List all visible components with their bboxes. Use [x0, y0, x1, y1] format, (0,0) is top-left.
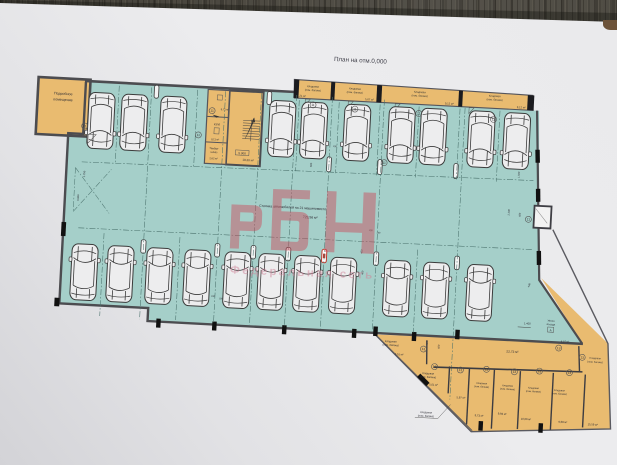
- svg-text:2,62 м²: 2,62 м²: [209, 156, 218, 160]
- svg-text:1.500: 1.500: [518, 171, 521, 178]
- svg-text:18,20 м²: 18,20 м²: [242, 158, 254, 163]
- svg-text:4,21 м²: 4,21 м²: [297, 94, 306, 98]
- svg-text:1.400: 1.400: [524, 321, 531, 325]
- svg-text:5,51 м²: 5,51 м²: [395, 352, 404, 356]
- svg-text:13: 13: [459, 368, 463, 372]
- svg-text:2.300: 2.300: [508, 209, 511, 216]
- svg-text:5,67 м²: 5,67 м²: [365, 97, 374, 101]
- svg-text:13: 13: [512, 370, 516, 374]
- svg-text:9,93 м²: 9,93 м²: [498, 412, 507, 416]
- svg-text:400: 400: [518, 212, 521, 217]
- svg-text:11: 11: [382, 161, 386, 165]
- svg-text:11: 11: [83, 124, 87, 128]
- svg-text:шлюз: шлюз: [210, 151, 218, 154]
- svg-text:13: 13: [422, 347, 426, 351]
- svg-text:9,12 м²: 9,12 м²: [445, 101, 454, 105]
- svg-text:10,09 м²: 10,09 м²: [521, 417, 532, 422]
- svg-text:11: 11: [353, 107, 357, 111]
- svg-text:3.000: 3.000: [76, 194, 80, 201]
- svg-text:(пом. багажа): (пом. багажа): [412, 93, 428, 98]
- svg-text:(пом. багажа): (пом. багажа): [486, 97, 502, 102]
- svg-text:КУИ: КУИ: [214, 122, 220, 126]
- svg-text:400: 400: [437, 344, 440, 349]
- svg-text:5,01 м²: 5,01 м²: [429, 382, 438, 386]
- svg-text:(пом. багажа): (пом. багажа): [305, 88, 321, 93]
- svg-text:13: 13: [557, 346, 561, 350]
- svg-text:15,59 м²: 15,59 м²: [588, 422, 599, 427]
- svg-text:5,97 м²: 5,97 м²: [456, 395, 465, 399]
- svg-text:11: 11: [197, 133, 201, 137]
- svg-text:11: 11: [492, 117, 496, 121]
- svg-text:3,11 м²: 3,11 м²: [211, 137, 220, 141]
- svg-text:9,12 м²: 9,12 м²: [517, 105, 526, 109]
- svg-text:13: 13: [433, 365, 437, 369]
- svg-text:13: 13: [580, 355, 584, 359]
- svg-text:13: 13: [538, 369, 542, 373]
- svg-text:13: 13: [568, 371, 572, 375]
- svg-text:11: 11: [527, 217, 531, 221]
- svg-text:11: 11: [210, 109, 214, 113]
- svg-text:План на отм.0,000: План на отм.0,000: [334, 56, 388, 66]
- svg-text:(пом. багажа): (пом. багажа): [347, 90, 363, 95]
- svg-text:22,73 м²: 22,73 м²: [506, 349, 518, 354]
- svg-text:5.000: 5.000: [238, 151, 246, 155]
- svg-text:А: А: [550, 328, 552, 332]
- svg-text:800: 800: [310, 162, 313, 167]
- svg-text:11: 11: [311, 103, 315, 107]
- svg-text:9,68 м²: 9,68 м²: [558, 420, 567, 424]
- svg-text:1.750: 1.750: [82, 170, 86, 177]
- svg-text:11: 11: [417, 111, 421, 115]
- svg-text:9,73 м²: 9,73 м²: [475, 413, 484, 417]
- svg-text:въезда: въезда: [547, 323, 556, 326]
- svg-text:6,97 м²: 6,97 м²: [561, 339, 570, 343]
- svg-text:13: 13: [485, 367, 489, 371]
